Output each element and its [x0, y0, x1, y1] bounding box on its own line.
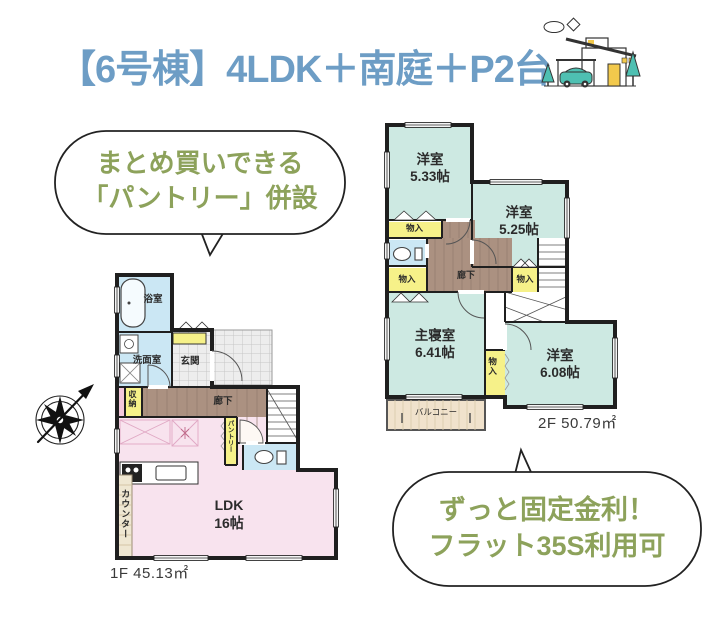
room-size: 5.25帖: [471, 222, 567, 239]
page-title: 【6号棟】4LDK＋南庭＋P2台: [58, 38, 551, 93]
room-label-entrance: 玄関: [170, 356, 210, 368]
floor-area-1f: 1F 45.13㎡: [110, 562, 189, 583]
callout-line: ずっと固定金利！: [388, 492, 706, 528]
callout-line: フラット35S利用可: [388, 528, 706, 564]
room-name: 洋室: [386, 152, 474, 169]
callout-line: まとめ買いできる: [50, 146, 350, 181]
room-label-master: 主寝室 6.41帖: [385, 328, 485, 362]
room-label-washroom: 洗面室: [119, 355, 175, 367]
pantry-label: パントリー: [225, 420, 233, 453]
closet-label: 物入: [385, 274, 429, 285]
room-size: 6.41帖: [385, 345, 485, 362]
pantry-callout: まとめ買いできる 「パントリー」併設: [50, 126, 350, 258]
room-size: 16帖: [189, 515, 269, 533]
callout-line: 「パントリー」併設: [50, 181, 350, 216]
room-label-bedroom3: 洋室 6.08帖: [506, 348, 614, 382]
balcony-label: バルコニー: [400, 407, 472, 418]
closet-label: 物入: [387, 223, 442, 234]
room-label-bathroom: 浴室: [128, 294, 178, 306]
room-size: 6.08帖: [506, 365, 614, 382]
loan-callout: ずっと固定金利！ フラット35S利用可: [388, 446, 706, 596]
room-label-bedroom2: 洋室 5.25帖: [471, 205, 567, 239]
counter-label: カウンター: [119, 489, 130, 539]
room-name: LDK: [189, 497, 269, 515]
room-name: 洋室: [506, 348, 614, 365]
room-label-hallway-2f: 廊下: [446, 270, 486, 281]
closet-label: 物入: [511, 274, 539, 285]
compass: [24, 378, 100, 454]
room-label-hallway-1f: 廊下: [201, 396, 245, 408]
room-label-ldk: LDK 16帖: [189, 497, 269, 532]
floor-plan-1f: 浴室 洗面室 玄関 廊下 収納 パントリー カウンター LDK 16帖 1F 4…: [98, 263, 366, 588]
room-label-bedroom1: 洋室 5.33帖: [386, 152, 474, 186]
compass-rose-icon: [24, 378, 100, 454]
floor-plan-2f: 洋室 5.33帖 洋室 5.25帖 主寝室 6.41帖 洋室 6.08帖 廊下 …: [372, 110, 640, 445]
room-name: 洋室: [471, 205, 567, 222]
storage-label: 収納: [127, 390, 137, 408]
closet-label-vertical: 物入: [487, 357, 498, 376]
house-illustration: [538, 14, 642, 98]
room-name: 主寝室: [385, 328, 485, 345]
floor-area-2f: 2F 50.79㎡: [538, 412, 617, 433]
room-size: 5.33帖: [386, 169, 474, 186]
house-icon: [538, 14, 642, 98]
flyer-canvas: 【6号棟】4LDK＋南庭＋P2台: [0, 0, 725, 624]
